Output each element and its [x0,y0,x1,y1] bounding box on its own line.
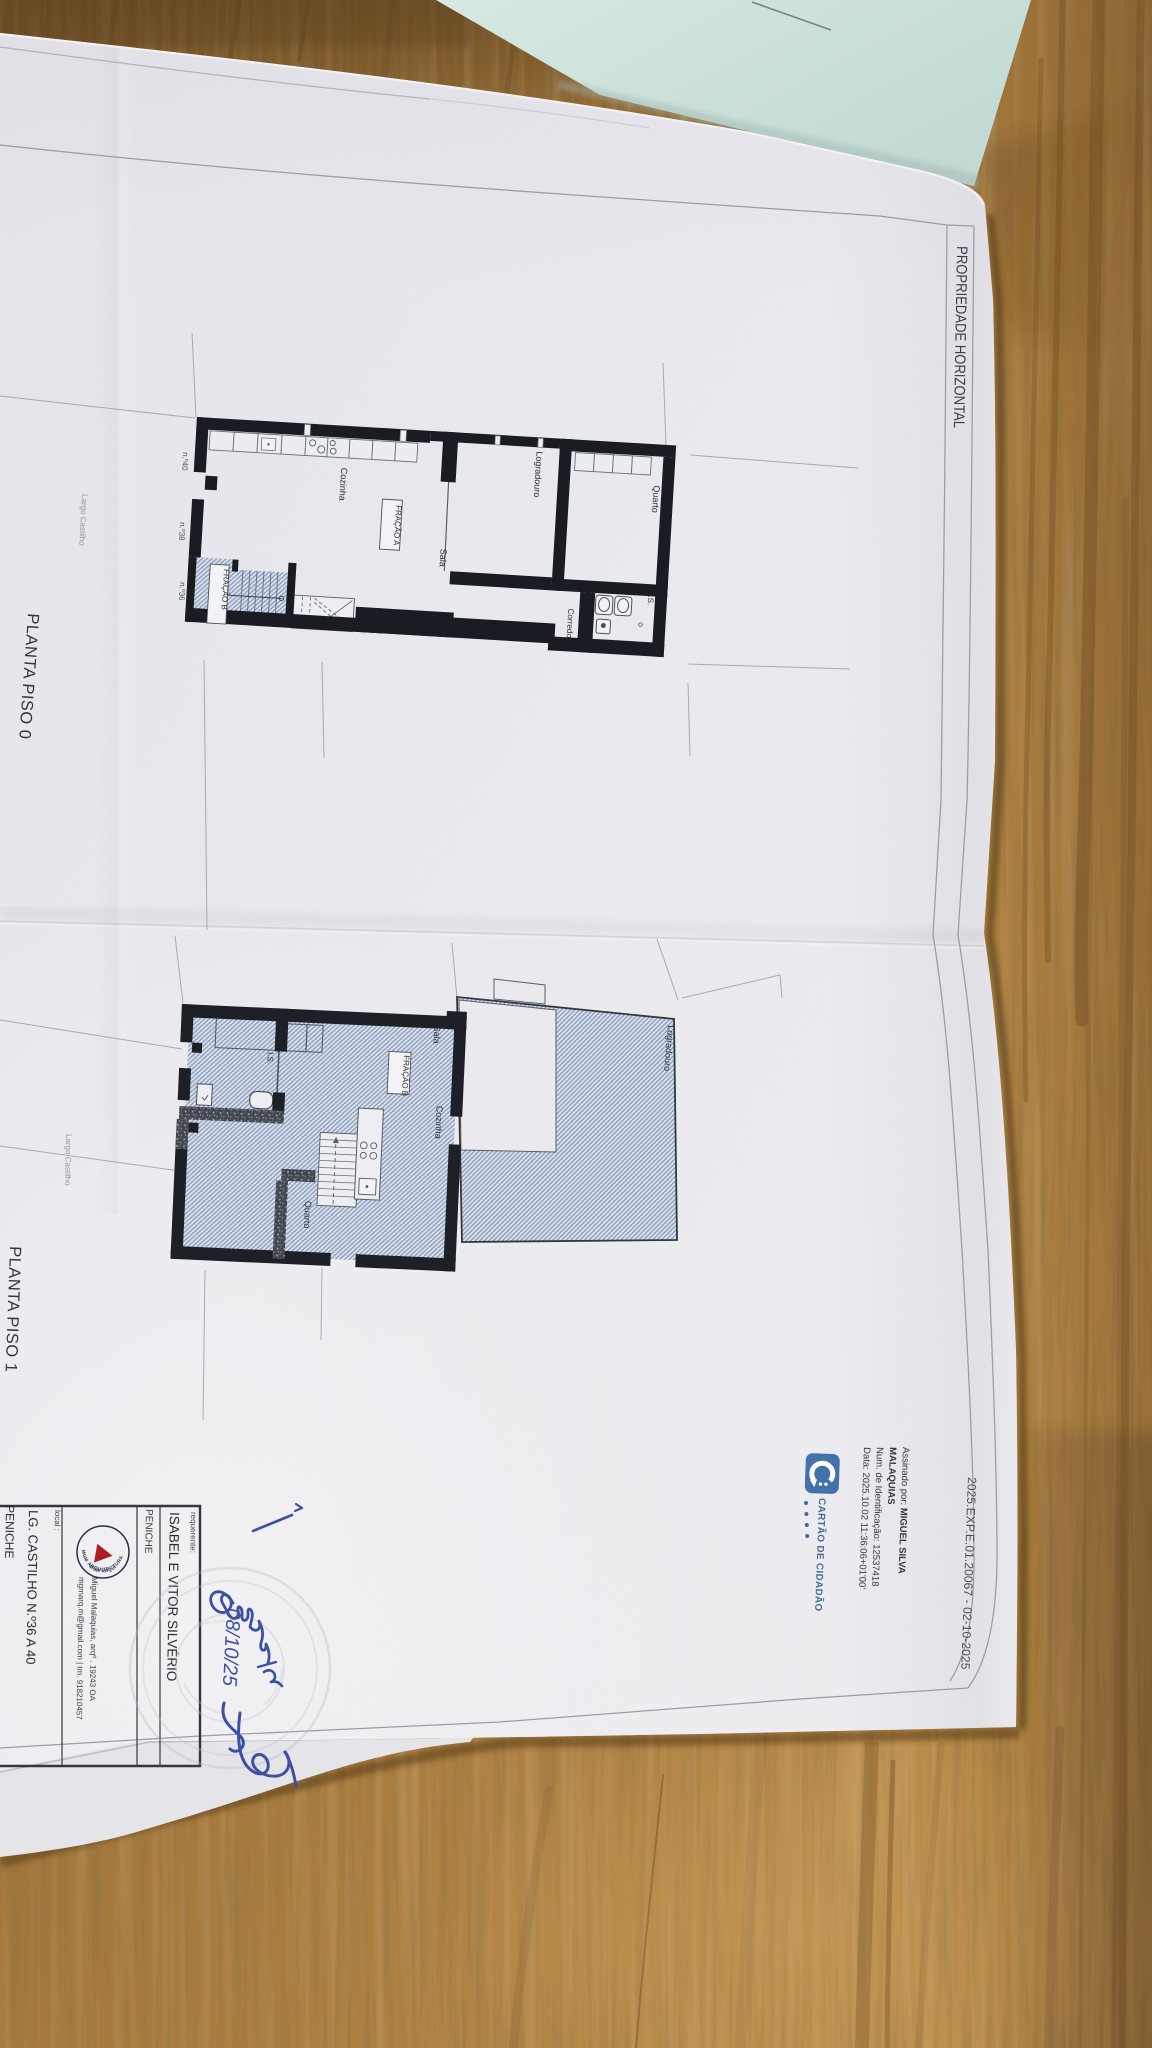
svg-text:LG. CASTILHO N.º36 A 40: LG. CASTILHO N.º36 A 40 [23,1510,41,1665]
svg-text:I.S.: I.S. [265,1052,275,1064]
svg-text:Quarto: Quarto [302,1201,313,1229]
svg-text:MALAQUIAS: MALAQUIAS [885,1447,898,1505]
svg-text:PENICHE: PENICHE [2,1505,17,1559]
svg-text:Cozinha: Cozinha [337,468,349,502]
svg-text:Cozinha: Cozinha [433,1106,444,1139]
svg-text:requerente:: requerente: [188,1512,198,1553]
svg-text:Quarto: Quarto [650,485,662,513]
svg-text:PROPRIEDADE HORIZONTAL: PROPRIEDADE HORIZONTAL [950,246,970,428]
svg-text:Sala: Sala [438,549,449,568]
svg-text:Largo Castilho: Largo Castilho [63,1134,73,1186]
svg-text:I.S.: I.S. [646,593,656,606]
svg-text:n.º38: n.º38 [177,522,187,541]
svg-text:local :: local : [53,1510,62,1531]
svg-text:Sala: Sala [431,1025,442,1043]
svg-text:FRAÇÃO B: FRAÇÃO B [400,1055,411,1096]
svg-text:n.º40: n.º40 [180,452,190,471]
svg-text:08/10/25: 08/10/25 [218,1608,244,1688]
svg-text:n.º36: n.º36 [177,582,187,601]
svg-text:PENICHE: PENICHE [142,1509,154,1554]
